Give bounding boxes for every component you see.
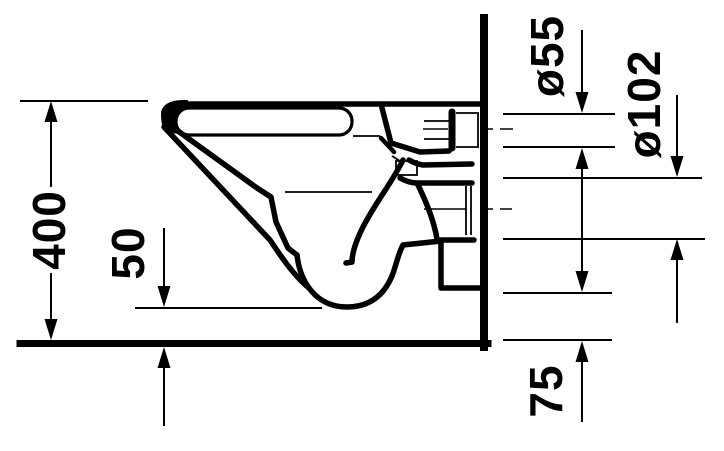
cistern-housing-edge [381,104,449,152]
arrow-400-down [45,319,58,340]
rim-front-corner [162,101,187,133]
dimension-label-outlet-bottom-height: 75 [523,364,569,417]
arrow-55-up [576,148,589,169]
dimension-label-outlet-diameter: ø102 [621,50,667,159]
arrow-400-up [45,101,58,122]
dimension-label-overall-height: 400 [26,190,72,270]
seat-profile [176,108,352,135]
dimension-label-inlet-diameter: ø55 [524,15,570,97]
front-outer-edge [164,127,309,288]
dimension-label-bowl-bottom-clearance: 50 [105,226,151,279]
outlet-left-wall [417,183,437,239]
arrow-102-down [671,156,684,177]
arrow-102-up [671,239,684,260]
arrow-50-up [158,347,171,368]
technical-drawing-canvas: 400 50 ø55 ø102 75 [0,0,724,451]
arrow-75-up [576,341,589,362]
outlet-connector [466,186,471,235]
outlet-top-edge [400,178,472,183]
front-inner-edge [178,131,297,255]
arrow-55-down [576,92,589,113]
flush-channel-bottom [409,160,472,165]
trap-curve [346,160,403,263]
arrow-75-down [576,271,589,292]
centerlines [423,129,513,209]
bowl-underside [297,241,481,307]
arrow-50-down [158,286,171,307]
